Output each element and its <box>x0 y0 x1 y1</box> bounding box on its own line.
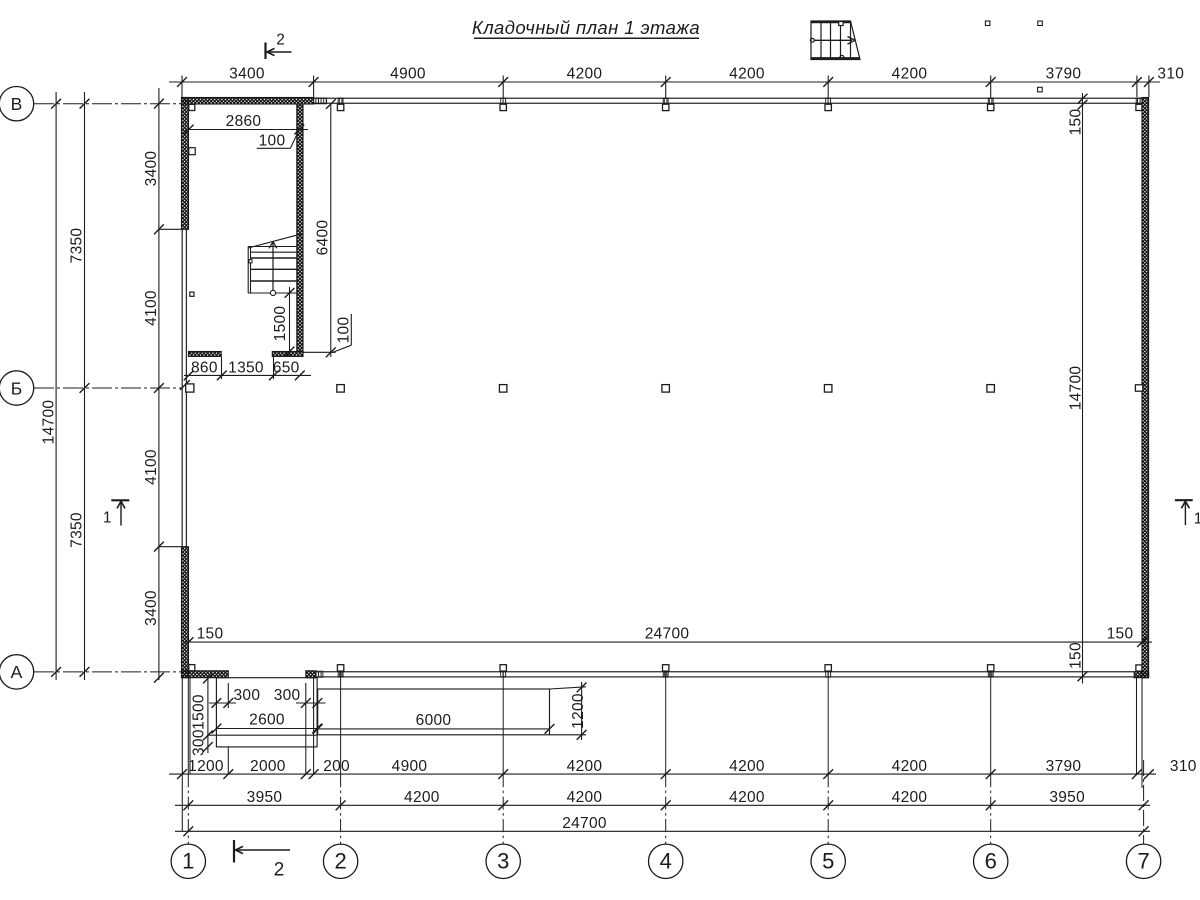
svg-text:200: 200 <box>323 758 350 775</box>
svg-text:3950: 3950 <box>247 789 283 806</box>
svg-text:300: 300 <box>234 687 261 704</box>
svg-text:4100: 4100 <box>143 290 160 326</box>
svg-text:1500: 1500 <box>272 306 289 342</box>
svg-text:2600: 2600 <box>249 712 285 729</box>
svg-text:2: 2 <box>276 32 285 49</box>
svg-text:2000: 2000 <box>250 758 286 775</box>
svg-text:300: 300 <box>274 687 301 704</box>
svg-text:6: 6 <box>985 849 997 874</box>
svg-text:1200: 1200 <box>570 693 587 729</box>
svg-text:5: 5 <box>822 849 834 874</box>
svg-text:3790: 3790 <box>1046 66 1082 83</box>
svg-text:4: 4 <box>660 849 672 874</box>
svg-text:4200: 4200 <box>892 758 928 775</box>
svg-text:А: А <box>11 662 23 682</box>
svg-text:300: 300 <box>191 729 208 756</box>
svg-text:3790: 3790 <box>1046 758 1082 775</box>
svg-text:В: В <box>11 94 23 114</box>
svg-text:4200: 4200 <box>567 789 603 806</box>
svg-text:650: 650 <box>273 359 300 376</box>
svg-text:3: 3 <box>497 849 509 874</box>
svg-text:1200: 1200 <box>188 758 224 775</box>
svg-text:14700: 14700 <box>1067 366 1084 411</box>
svg-text:1: 1 <box>1194 510 1200 527</box>
svg-text:24700: 24700 <box>562 815 607 832</box>
svg-text:7350: 7350 <box>69 512 86 548</box>
svg-text:6000: 6000 <box>416 712 452 729</box>
svg-text:100: 100 <box>259 132 286 149</box>
svg-text:4200: 4200 <box>892 66 928 83</box>
svg-text:150: 150 <box>197 626 224 643</box>
svg-text:2: 2 <box>334 849 346 874</box>
svg-text:1350: 1350 <box>228 359 264 376</box>
svg-text:150: 150 <box>1107 626 1134 643</box>
svg-text:150: 150 <box>1067 109 1084 136</box>
svg-text:2: 2 <box>274 860 285 881</box>
svg-text:4200: 4200 <box>729 789 765 806</box>
svg-text:4900: 4900 <box>392 758 428 775</box>
svg-text:4200: 4200 <box>729 758 765 775</box>
svg-text:1: 1 <box>103 510 112 527</box>
svg-text:3400: 3400 <box>229 66 265 83</box>
svg-text:Б: Б <box>11 378 22 398</box>
svg-text:4200: 4200 <box>404 789 440 806</box>
svg-text:860: 860 <box>191 359 218 376</box>
svg-text:310: 310 <box>1170 758 1197 775</box>
svg-text:100: 100 <box>335 317 352 344</box>
svg-text:7350: 7350 <box>69 228 86 264</box>
svg-text:4200: 4200 <box>729 66 765 83</box>
svg-text:7: 7 <box>1137 849 1149 874</box>
svg-text:4200: 4200 <box>567 66 603 83</box>
svg-text:1500: 1500 <box>191 694 208 730</box>
svg-text:14700: 14700 <box>41 400 58 445</box>
svg-text:3400: 3400 <box>143 151 160 187</box>
svg-text:3400: 3400 <box>143 590 160 626</box>
svg-text:4200: 4200 <box>567 758 603 775</box>
svg-text:4100: 4100 <box>143 449 160 485</box>
svg-text:150: 150 <box>1067 642 1084 669</box>
svg-text:3950: 3950 <box>1049 789 1085 806</box>
svg-text:24700: 24700 <box>645 626 690 643</box>
svg-text:Кладочный план 1 этажа: Кладочный план 1 этажа <box>472 17 700 38</box>
svg-text:4200: 4200 <box>892 789 928 806</box>
svg-text:2860: 2860 <box>226 113 262 130</box>
svg-text:1: 1 <box>182 849 194 874</box>
svg-text:310: 310 <box>1157 66 1184 83</box>
svg-text:4900: 4900 <box>390 66 426 83</box>
svg-text:6400: 6400 <box>314 220 331 256</box>
